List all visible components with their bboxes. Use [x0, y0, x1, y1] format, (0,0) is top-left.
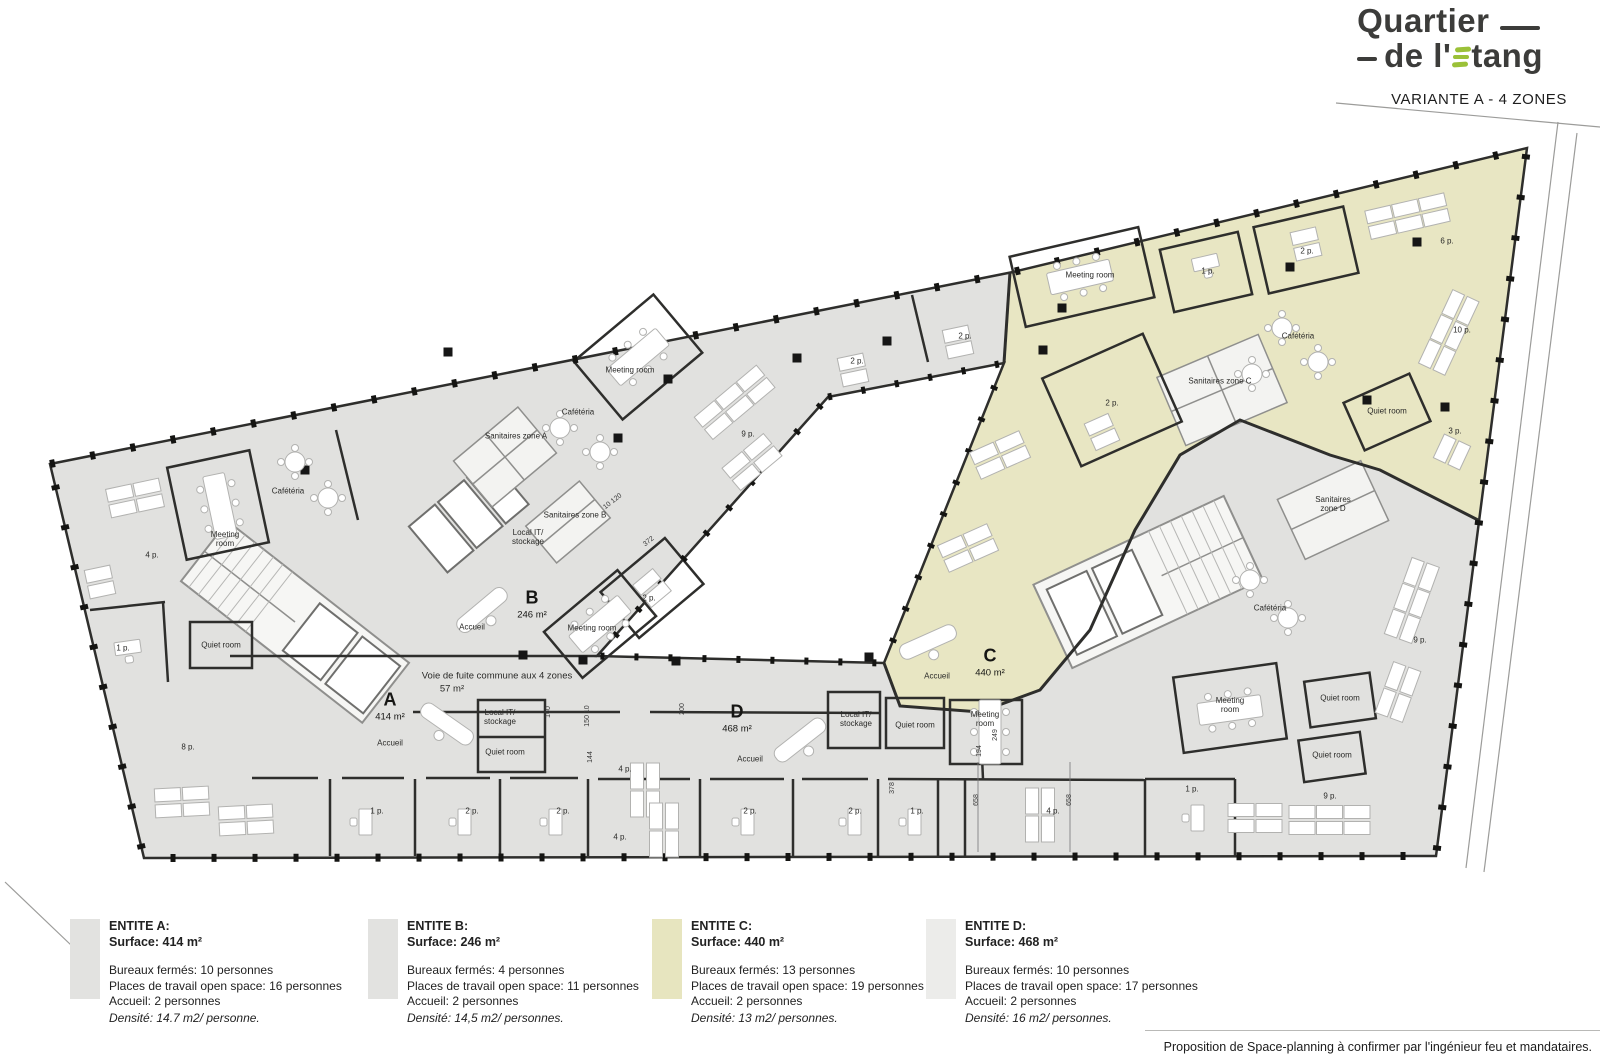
legend-color-swatch: [368, 919, 398, 999]
legend-entity-line: Bureaux fermés: 10 personnes: [109, 963, 342, 979]
legend-entity-line: Places de travail open space: 17 personn…: [965, 979, 1198, 995]
legend-entity-name: ENTITE B:: [407, 919, 639, 935]
legend-color-swatch: [70, 919, 100, 999]
footer-rule: [1145, 1030, 1600, 1031]
logo-word-1: Quartier: [1357, 4, 1489, 39]
page-canvas: CafétériaMeeting room4 p.1 p.Quiet room8…: [0, 0, 1600, 1063]
logo-word-2-prefix: de l': [1384, 39, 1451, 74]
legend-entity-block: ENTITE C: Surface: 440 m² Bureaux fermés…: [652, 919, 924, 1025]
legend-entity-surface: Surface: 468 m²: [965, 935, 1198, 951]
company-logo: Quartier de l' tang: [1357, 4, 1543, 73]
legend-entity-name: ENTITE C:: [691, 919, 924, 935]
stylized-e-icon: [1453, 47, 1469, 67]
legend-entity-line: Accueil: 2 personnes: [691, 994, 924, 1010]
legend-entity-surface: Surface: 246 m²: [407, 935, 639, 951]
legend-entity-line: Places de travail open space: 19 personn…: [691, 979, 924, 995]
logo-dash-icon: [1357, 57, 1377, 61]
legend-entity-line: Accueil: 2 personnes: [965, 994, 1198, 1010]
legend-entity-density: Densité: 13 m2/ personnes.: [691, 1011, 924, 1025]
legend-color-swatch: [652, 919, 682, 999]
legend-entity-line: Accueil: 2 personnes: [407, 994, 639, 1010]
legend-entity-line: Bureaux fermés: 13 personnes: [691, 963, 924, 979]
legend-color-swatch: [926, 919, 956, 999]
legend-entity-name: ENTITE D:: [965, 919, 1198, 935]
legend-entity-line: Places de travail open space: 11 personn…: [407, 979, 639, 995]
logo-dash-icon: [1500, 26, 1540, 30]
legend: ENTITE A: Surface: 414 m² Bureaux fermés…: [0, 905, 1600, 1035]
footer-note: Proposition de Space-planning à confirme…: [1164, 1040, 1592, 1054]
legend-entity-surface: Surface: 414 m²: [109, 935, 342, 951]
floor-plan-drawing: [0, 0, 1600, 1063]
legend-entity-line: Accueil: 2 personnes: [109, 994, 342, 1010]
legend-entity-line: Places de travail open space: 16 personn…: [109, 979, 342, 995]
legend-entity-block: ENTITE D: Surface: 468 m² Bureaux fermés…: [926, 919, 1198, 1025]
legend-entity-density: Densité: 14,5 m2/ personnes.: [407, 1011, 639, 1025]
variant-title: VARIANTE A - 4 ZONES: [1391, 91, 1567, 108]
legend-entity-line: Bureaux fermés: 4 personnes: [407, 963, 639, 979]
legend-entity-block: ENTITE A: Surface: 414 m² Bureaux fermés…: [70, 919, 342, 1025]
logo-word-2-suffix: tang: [1471, 39, 1543, 74]
legend-entity-block: ENTITE B: Surface: 246 m² Bureaux fermés…: [368, 919, 639, 1025]
legend-entity-line: Bureaux fermés: 10 personnes: [965, 963, 1198, 979]
legend-entity-name: ENTITE A:: [109, 919, 342, 935]
legend-entity-density: Densité: 16 m2/ personnes.: [965, 1011, 1198, 1025]
legend-entity-surface: Surface: 440 m²: [691, 935, 924, 951]
legend-entity-density: Densité: 14.7 m2/ personne.: [109, 1011, 342, 1025]
